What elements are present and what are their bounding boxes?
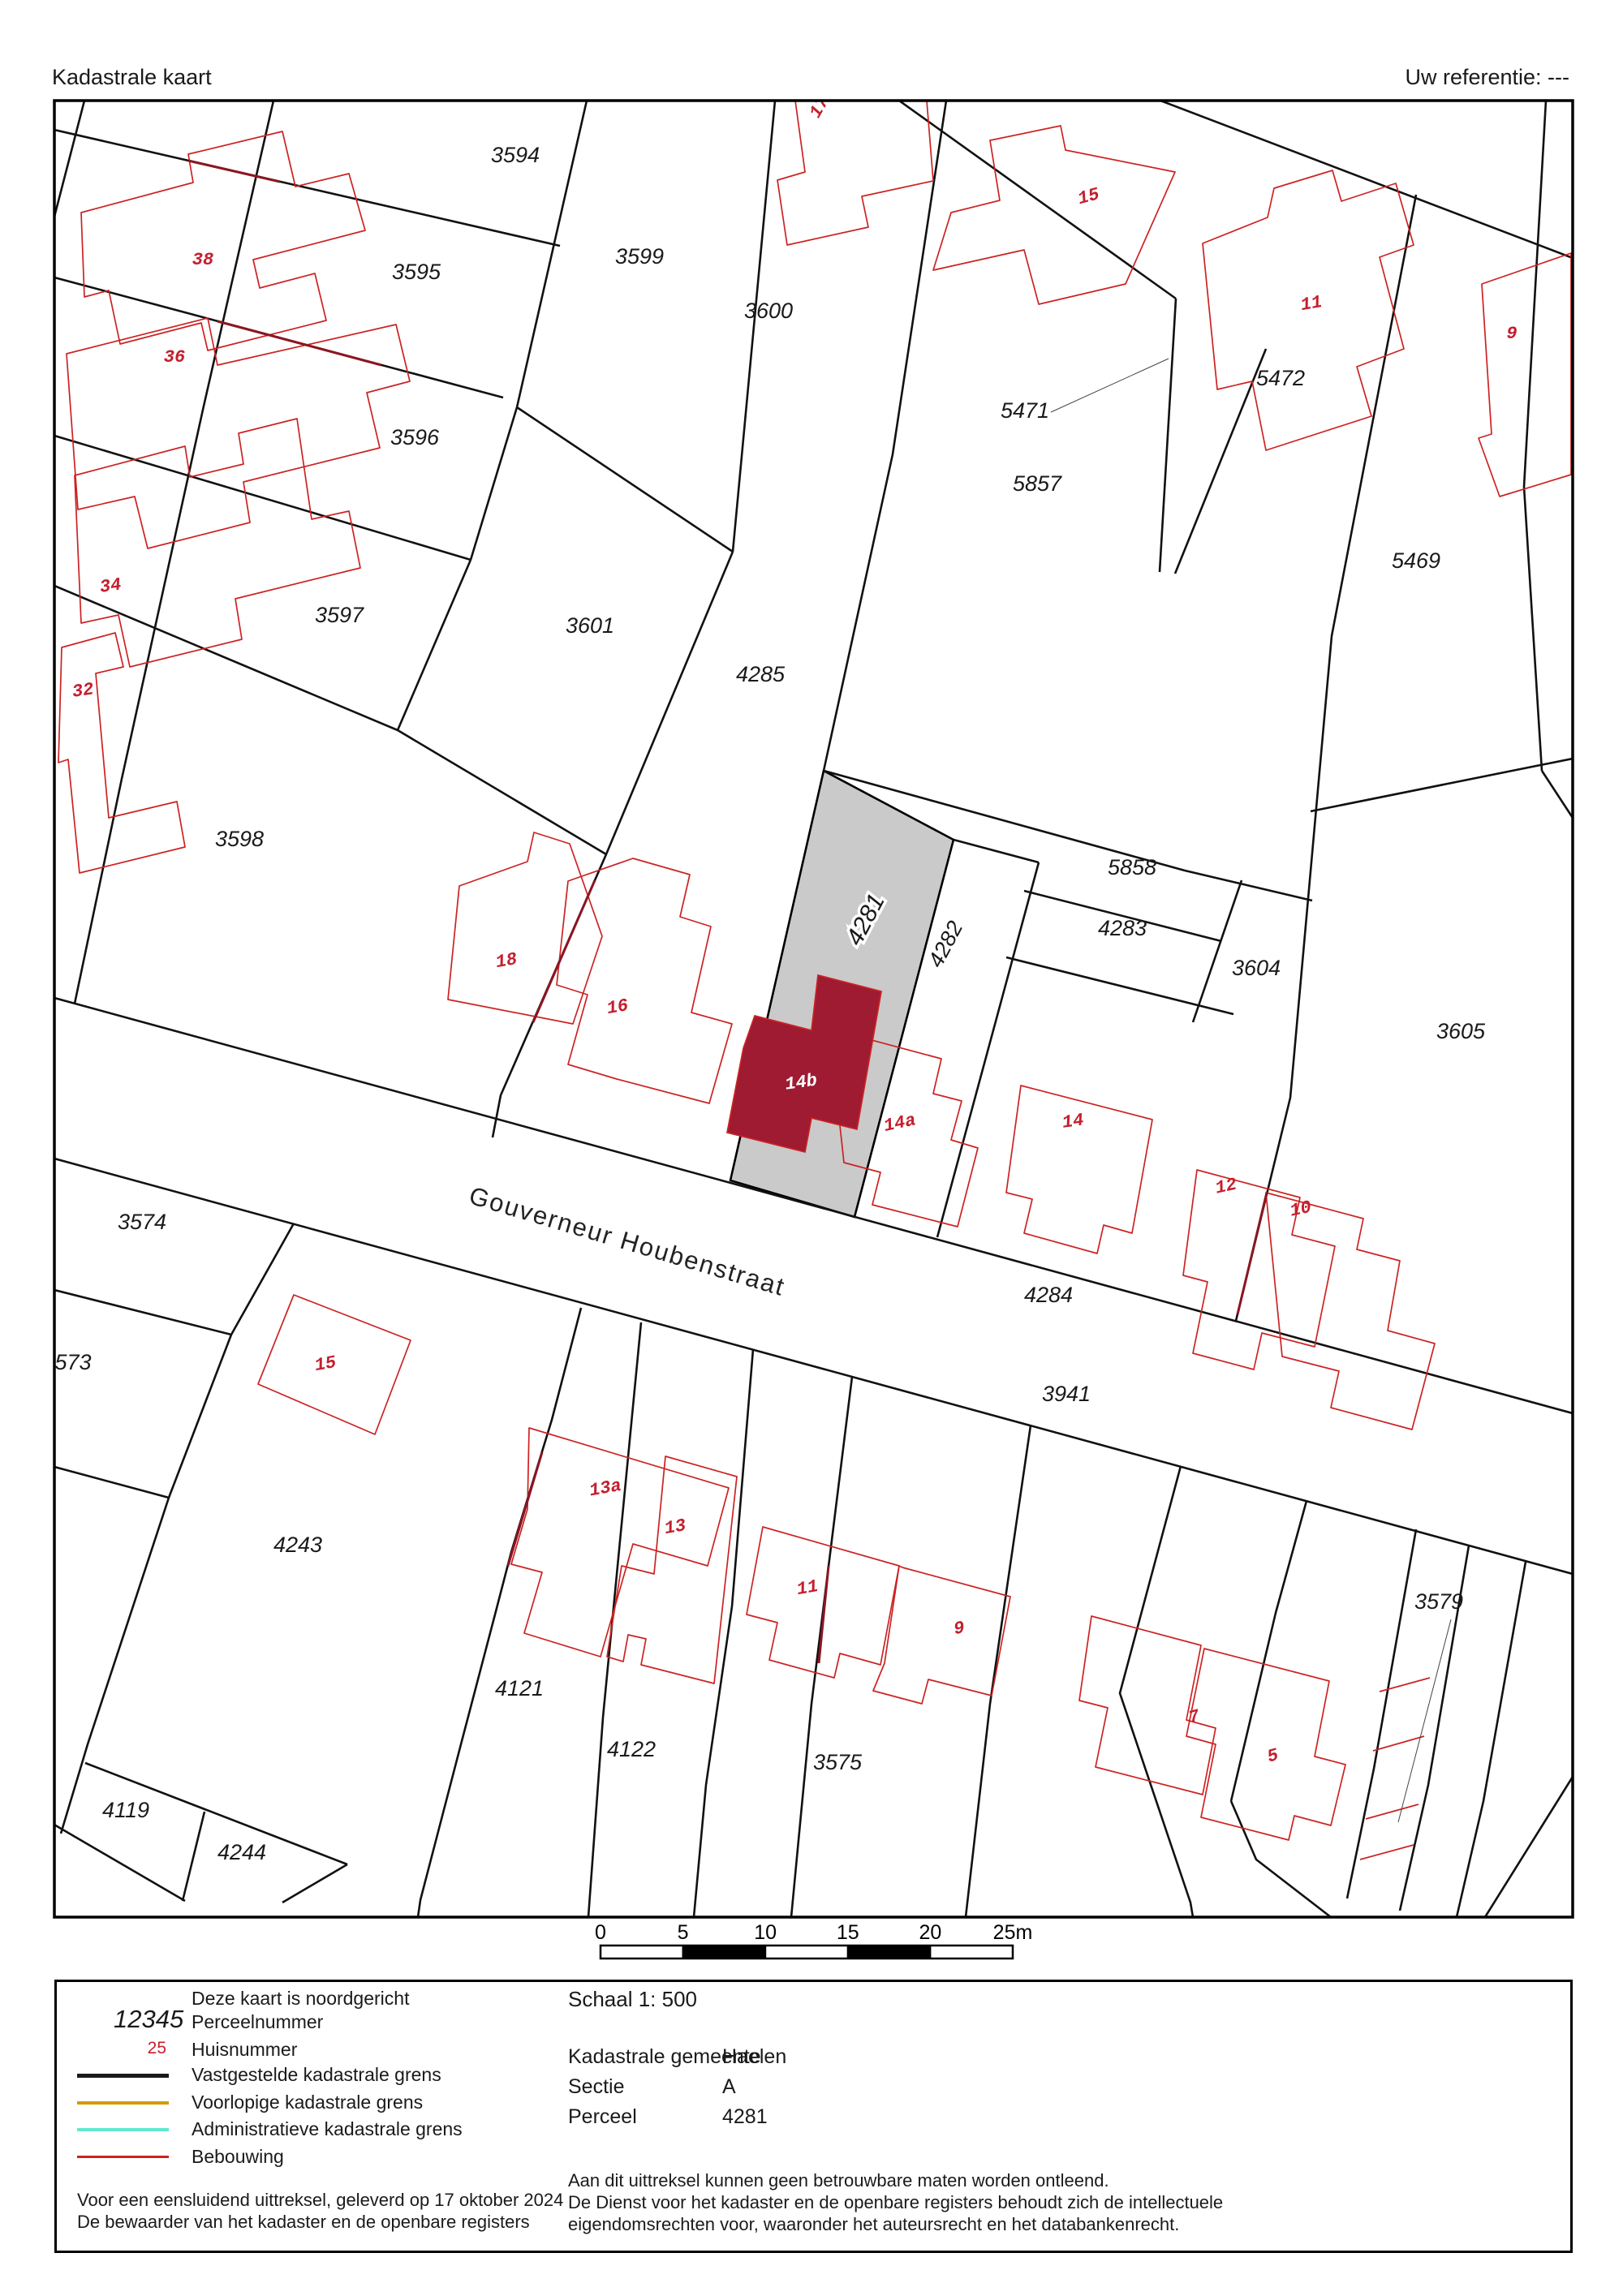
building-outline-13 [1266,1193,1435,1430]
parcel-label-3941: 3941 [1042,1382,1091,1406]
building-outline-8 [448,832,602,1024]
disclaimer-line-1: Aan dit uittreksel kunnen geen betrouwba… [568,2170,1109,2191]
parcel-boundary-37 [1120,1466,1193,1917]
legend-line-swatch-4 [77,2128,169,2131]
parcel-label-5472: 5472 [1256,366,1305,390]
parcel-boundary-33 [588,1322,641,1917]
legend-symbol-parcelnumber: 12345 [114,2005,166,2034]
legend-box: Deze kaart is noordgericht 12345Perceeln… [54,1980,1573,2253]
scalebar-label-15: 15 [837,1921,859,1944]
parcel-boundary-30 [61,1223,294,1834]
building-outline-3 [58,633,185,873]
scalebar-segment-0 [601,1946,683,1958]
parcel-label-3597: 3597 [315,603,364,627]
parcel-label-3598: 3598 [215,827,264,851]
parcel-label-5469: 5469 [1392,548,1440,573]
parcel-label-3579: 3579 [1414,1589,1463,1614]
legend-symbol-housenumber: 25 [114,2039,166,2058]
overlap-segment-2 [508,1452,542,1566]
parcel-label-4121: 4121 [495,1676,544,1701]
parcel-boundary-1 [54,1159,1573,1574]
house-number-18: 18 [494,949,519,973]
parcel-label-4122: 4122 [607,1737,656,1761]
legend-item-label: Vastgestelde kadastrale grens [192,2064,441,2086]
parcel-boundary-14 [824,101,946,771]
house-number-12: 12 [1213,1175,1238,1199]
parcel-boundary-12 [517,407,733,552]
building-outline-20 [1186,1649,1345,1840]
parcel-boundary-45 [53,1824,185,1901]
parcel-label-4243: 4243 [273,1533,322,1557]
parcel-boundary-23 [1524,101,1546,771]
parcel-label-3575: 3575 [813,1750,863,1774]
house-number-16: 16 [605,995,630,1019]
issued-note-line2: De bewaarder van het kadaster en de open… [77,2212,530,2233]
house-number-13a: 13a [588,1476,622,1501]
legend-line-swatch-3 [77,2101,169,2105]
building-outline-9 [557,858,732,1103]
field-value-Kadastrale gemeente: Haelen [722,2045,786,2069]
parcel-boundary-34 [694,1349,753,1917]
leader-line-0 [1051,359,1169,412]
house-number-11: 11 [795,1576,820,1600]
page-title: Kadastrale kaart [52,65,212,90]
building-outline-17 [747,1527,899,1678]
legend-item-label: Voorlopige kadastrale grens [192,2092,423,2113]
parcel-label-4283: 4283 [1098,916,1147,940]
parcel-boundary-31 [54,1467,169,1498]
building-outline-2 [75,419,360,667]
parcel-boundary-32 [418,1308,581,1917]
parcel-boundary-47 [282,1864,347,1903]
scalebar-segment-3 [848,1946,931,1958]
parcel-label-3601: 3601 [566,613,614,638]
parcel-boundary-28 [1160,101,1573,258]
scalebar-label-5: 5 [678,1921,689,1944]
parcel-boundary-21 [1236,195,1416,1321]
parcel-boundary-40 [1347,1529,1416,1898]
legend-item-label: Perceelnummer [192,2011,323,2033]
parcel-boundary-39 [1231,1801,1331,1917]
parcel-boundary-19 [1193,880,1242,1022]
house-number-15: 15 [313,1352,338,1376]
scalebar-label-20: 20 [919,1921,941,1944]
field-value-Perceel: 4281 [722,2105,768,2129]
scalebar-label-10: 10 [754,1921,777,1944]
legend-line-swatch-2 [77,2074,169,2078]
house-number-32: 32 [71,679,95,702]
overlap-segment-3 [188,161,280,182]
parcel-label-573: 573 [54,1350,91,1374]
scalebar-segment-1 [683,1946,766,1958]
house-number-13: 13 [663,1516,687,1539]
parcel-label-3596: 3596 [390,425,440,449]
north-note: Deze kaart is noordgericht [192,1988,409,2010]
parcel-boundary-2 [75,101,273,1004]
parcel-label-4119: 4119 [102,1798,149,1822]
parcel-boundary-15 [954,840,1039,862]
house-number-14a: 14a [882,1110,918,1137]
parcel-boundary-22 [1311,759,1573,811]
parcel-label-3574: 3574 [118,1210,166,1234]
parcel-label-3599: 3599 [615,244,664,269]
house-number-15: 15 [1076,184,1102,209]
parcel-label-4285: 4285 [736,662,786,686]
house-number-10: 10 [1288,1197,1313,1222]
reference-text: Uw referentie: --- [1405,65,1569,90]
legend-item-label: Huisnummer [192,2039,297,2061]
scale-text: Schaal 1: 500 [568,1987,697,2012]
leader-line-1 [1398,1619,1451,1822]
legend-item-label: Bebouwing [192,2146,284,2168]
map-geometry: 3594359535963597359835993600360142855471… [53,92,1573,1917]
building-outline-4 [777,101,933,245]
overlap-segment-4 [819,1566,829,1663]
house-number-9: 9 [1506,324,1517,344]
building-segment-1 [1373,1736,1424,1751]
legend-line-swatch-5 [77,2156,169,2158]
legend-item-label: Administratieve kadastrale grens [192,2118,463,2140]
parcel-label-3600: 3600 [744,299,793,323]
house-number-5: 5 [1265,1745,1281,1768]
parcel-boundary-16 [937,862,1039,1237]
building-outline-5 [933,126,1175,304]
parcel-label-5471: 5471 [1001,398,1049,423]
scalebar-segment-2 [765,1946,848,1958]
parcel-boundary-9 [398,730,606,854]
parcel-label-3605: 3605 [1436,1019,1486,1043]
parcel-label-5857: 5857 [1013,471,1062,496]
building-outline-12 [1183,1170,1335,1369]
parcel-label-3595: 3595 [392,260,441,284]
parcel-label-5858: 5858 [1108,855,1156,879]
house-number-14: 14 [1061,1110,1085,1133]
parcel-boundary-29 [54,1290,231,1335]
scalebar-label-0: 0 [595,1921,606,1944]
scalebar-label-25m: 25m [993,1921,1033,1944]
disclaimer-line-2: De Dienst voor het kadaster en de openba… [568,2192,1223,2213]
house-number-36: 36 [164,347,185,368]
parcel-boundary-6 [54,436,471,560]
house-number-11: 11 [1299,292,1324,316]
building-segment-3 [1360,1845,1414,1860]
building-outline-19 [1079,1616,1216,1795]
house-number-34: 34 [98,574,123,597]
parcel-boundary-10 [493,552,733,1137]
disclaimer-line-3: eigendomsrechten voor, waaronder het aut… [568,2214,1179,2235]
parcel-label-4284: 4284 [1024,1283,1073,1307]
parcel-boundary-13 [733,101,775,552]
house-number-9: 9 [952,1618,966,1640]
field-label-Perceel: Perceel [568,2105,637,2129]
parcel-boundary-11 [471,101,587,560]
building-segment-2 [1366,1804,1419,1819]
building-outline-16 [607,1456,737,1683]
house-number-38: 38 [192,250,213,270]
overlap-segment-1 [1238,1193,1267,1314]
scalebar-segment-4 [930,1946,1013,1958]
parcel-boundary-46 [183,1812,204,1901]
parcel-boundary-4 [54,130,560,246]
parcel-boundary-8 [398,560,471,730]
cadastral-map: 3594359535963597359835993600360142855471… [0,0,1623,2296]
field-value-Sectie: A [722,2075,736,2099]
parcel-boundary-24 [1542,771,1573,818]
parcel-boundary-26 [1160,299,1176,572]
issued-note-line1: Voor een eensluidend uittreksel, gelever… [77,2190,563,2211]
building-segment-0 [1380,1678,1430,1692]
parcel-boundary-3 [54,101,84,217]
building-outline-18 [873,1566,1010,1704]
parcel-boundary-42 [1457,1562,1526,1917]
parcel-label-3604: 3604 [1232,956,1281,980]
house-number-17: 17 [806,92,834,122]
parcel-label-3594: 3594 [491,143,540,167]
parcel-label-4244: 4244 [217,1840,266,1864]
parcel-boundary-43 [1485,1777,1573,1917]
parcel-boundary-36 [966,1425,1031,1917]
field-label-Sectie: Sectie [568,2075,624,2099]
